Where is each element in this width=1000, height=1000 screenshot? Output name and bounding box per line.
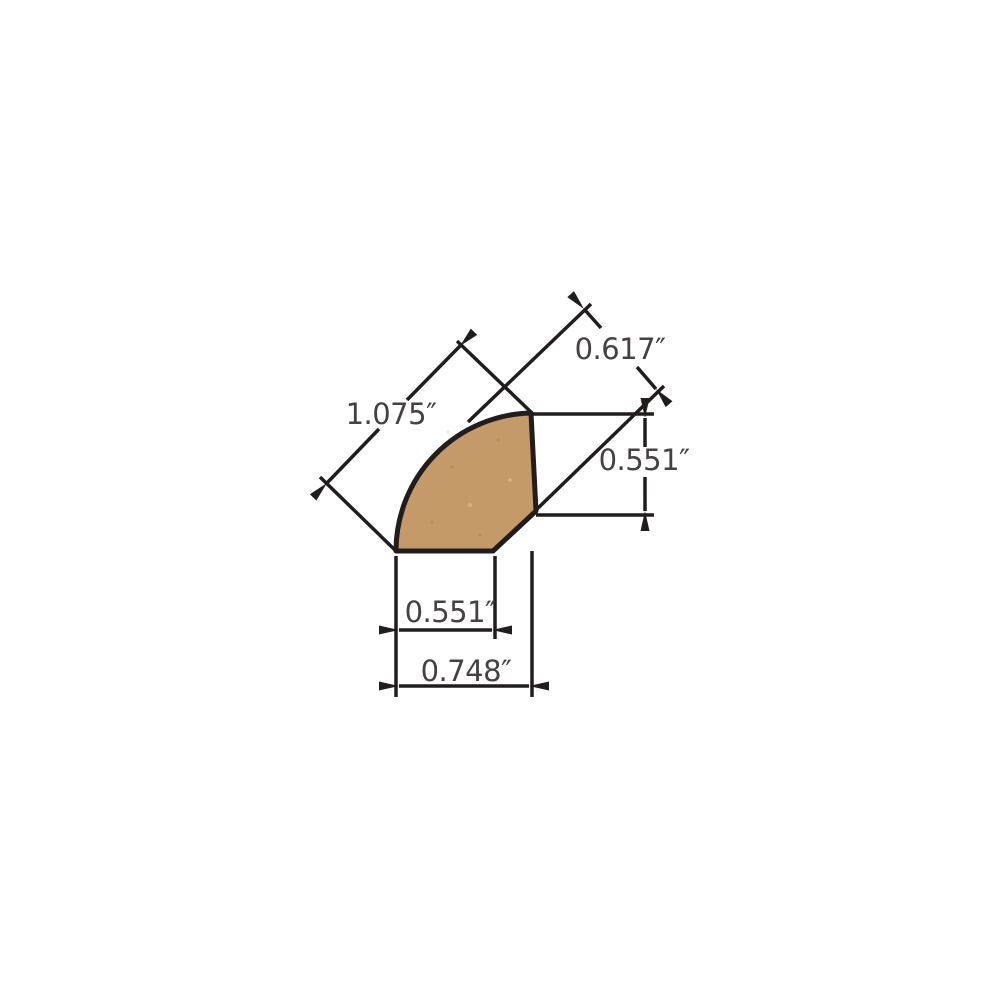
dimension-drawing-svg: 1.075″ 0.617″ 0.551″ 0.551″ 0.748″ [0, 0, 1000, 1000]
dim-line-diagonal-projection-upper-segment [584, 309, 601, 328]
label-diagonal-projection: 0.617″ [575, 332, 667, 366]
label-diagonal-face: 1.075″ [346, 397, 438, 431]
label-overall-width: 0.748″ [421, 654, 513, 688]
dim-line-diagonal-projection-lower-segment [637, 367, 656, 389]
label-bottom-width: 0.551″ [405, 595, 497, 629]
ext-line-diagonal-face-lower [320, 477, 396, 551]
ext-line-diagonal-face-upper [457, 341, 533, 414]
label-right-height: 0.551″ [599, 443, 691, 477]
product-dimension-diagram: 1.075″ 0.617″ 0.551″ 0.551″ 0.748″ [0, 0, 1000, 1000]
molding-profile [396, 413, 536, 551]
dim-line-diagonal-face-upper-segment [407, 346, 460, 400]
quarter-round-shape [396, 413, 536, 551]
dim-line-diagonal-face-lower-segment [327, 429, 379, 483]
ext-line-diagonal-projection-upper [468, 304, 591, 422]
